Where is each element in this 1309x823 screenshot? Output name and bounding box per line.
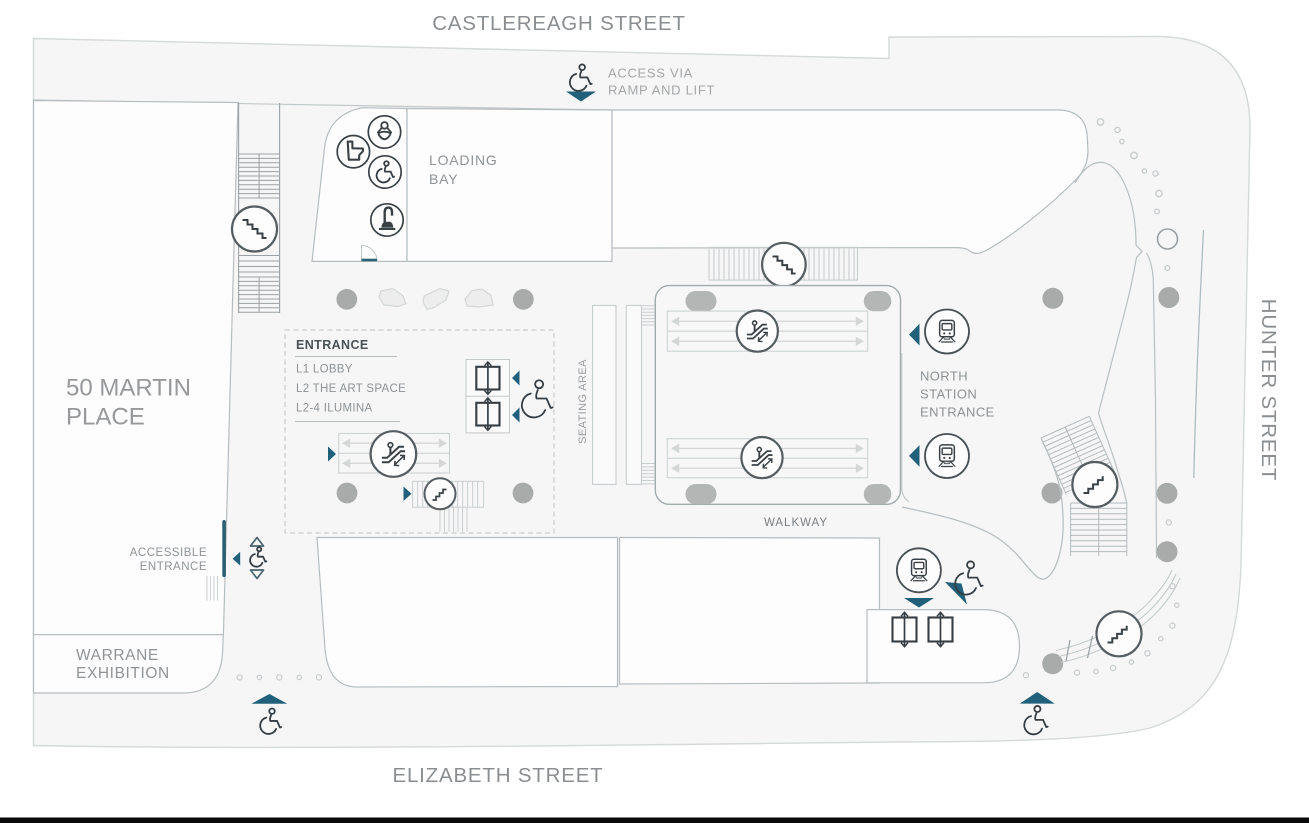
svg-text:ACCESS VIA: ACCESS VIA [608, 66, 693, 81]
svg-text:ENTRANCE: ENTRANCE [920, 405, 995, 420]
svg-text:WARRANE: WARRANE [76, 647, 159, 664]
svg-text:ELIZABETH STREET: ELIZABETH STREET [392, 764, 603, 787]
svg-text:SEATING AREA: SEATING AREA [577, 359, 589, 444]
svg-text:ENTRANCE: ENTRANCE [140, 561, 207, 573]
svg-text:ENTRANCE: ENTRANCE [296, 338, 369, 352]
svg-text:ACCESSIBLE: ACCESSIBLE [130, 547, 207, 559]
svg-text:LOADING: LOADING [429, 152, 498, 168]
svg-text:EXHIBITION: EXHIBITION [76, 665, 170, 682]
svg-text:50 MARTIN: 50 MARTIN [66, 375, 191, 402]
svg-text:WALKWAY: WALKWAY [764, 517, 828, 529]
svg-text:L1 LOBBY: L1 LOBBY [296, 364, 353, 376]
svg-text:STATION: STATION [920, 387, 977, 402]
svg-text:PLACE: PLACE [66, 404, 145, 431]
svg-text:L2 THE ART SPACE: L2 THE ART SPACE [296, 383, 406, 395]
svg-text:BAY: BAY [429, 171, 458, 187]
svg-text:L2-4 ILUMINA: L2-4 ILUMINA [296, 403, 372, 415]
svg-text:CASTLEREAGH STREET: CASTLEREAGH STREET [432, 12, 686, 35]
svg-text:RAMP AND LIFT: RAMP AND LIFT [608, 83, 715, 98]
svg-text:HUNTER STREET: HUNTER STREET [1257, 299, 1280, 481]
svg-text:NORTH: NORTH [920, 369, 968, 384]
